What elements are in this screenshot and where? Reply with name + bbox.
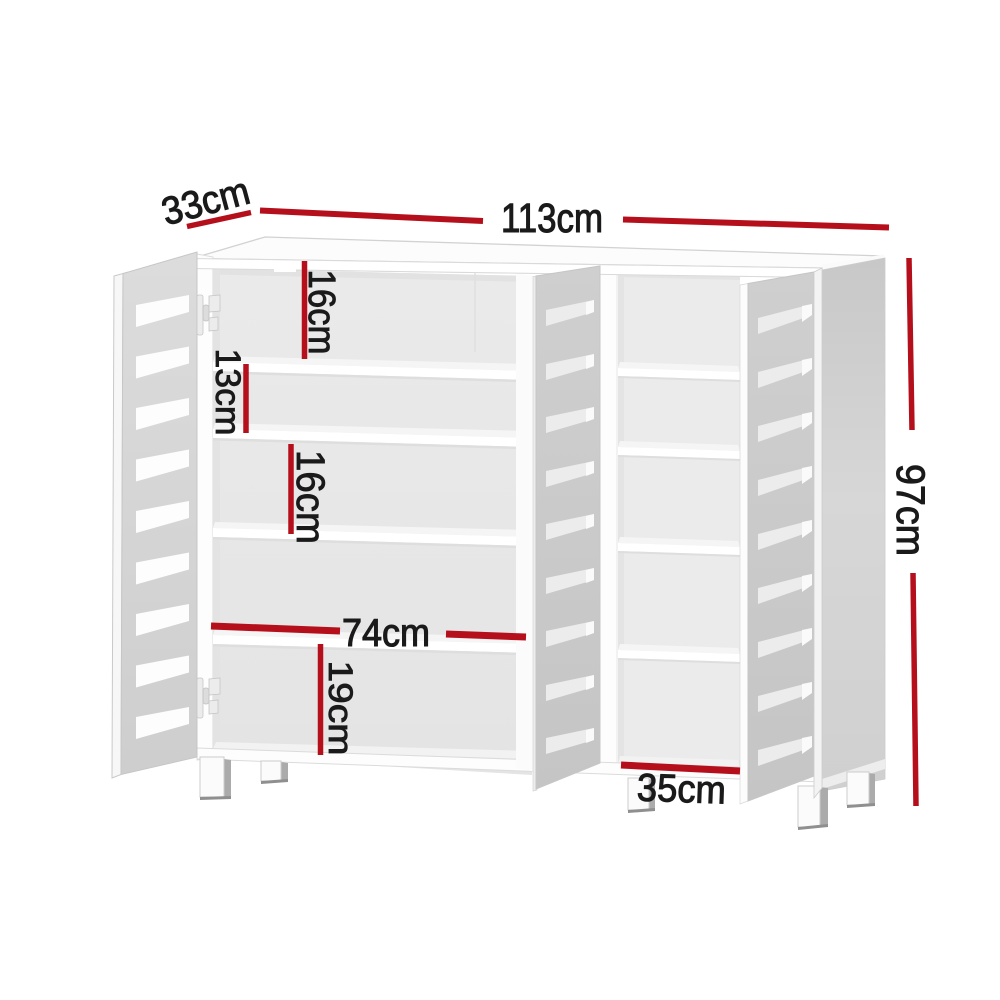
svg-text:97cm: 97cm [888,464,932,556]
svg-text:19cm: 19cm [321,661,359,756]
svg-text:35cm: 35cm [636,766,726,812]
svg-text:74cm: 74cm [342,612,430,655]
svg-text:13cm: 13cm [208,349,247,436]
svg-text:16cm: 16cm [288,450,332,544]
svg-text:16cm: 16cm [300,270,342,355]
svg-text:113cm: 113cm [501,195,603,241]
